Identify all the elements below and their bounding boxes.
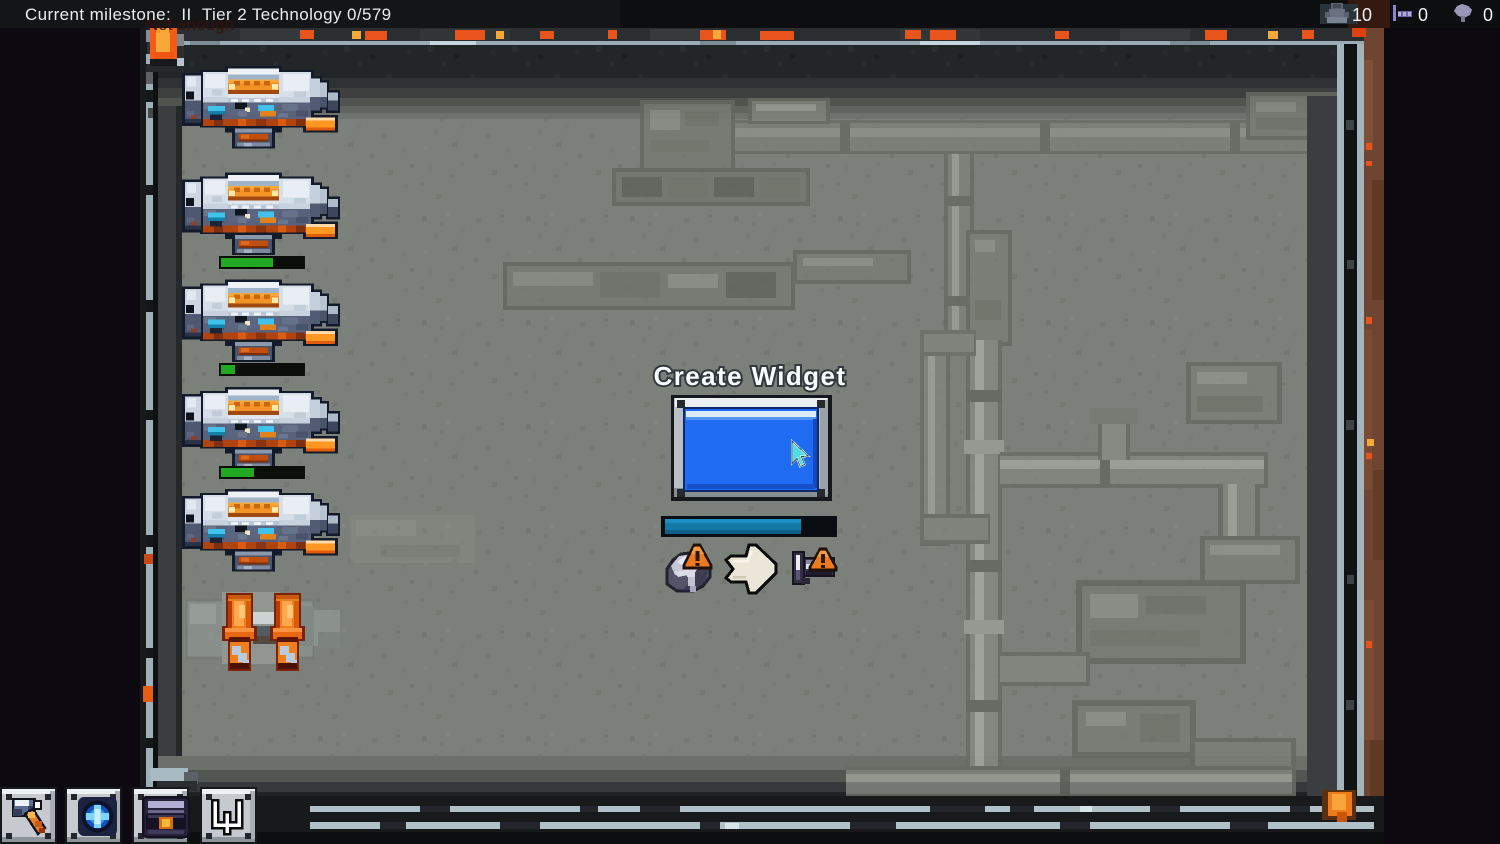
svg-text:0: 0 xyxy=(1418,5,1428,25)
svg-text:Current milestone: II Tier 2: Current milestone: II Tier 2 Technology … xyxy=(25,5,392,24)
svg-text:Create Widget: Create Widget xyxy=(654,361,847,391)
svg-text:10: 10 xyxy=(1352,5,1372,25)
svg-text:0: 0 xyxy=(1483,5,1493,25)
